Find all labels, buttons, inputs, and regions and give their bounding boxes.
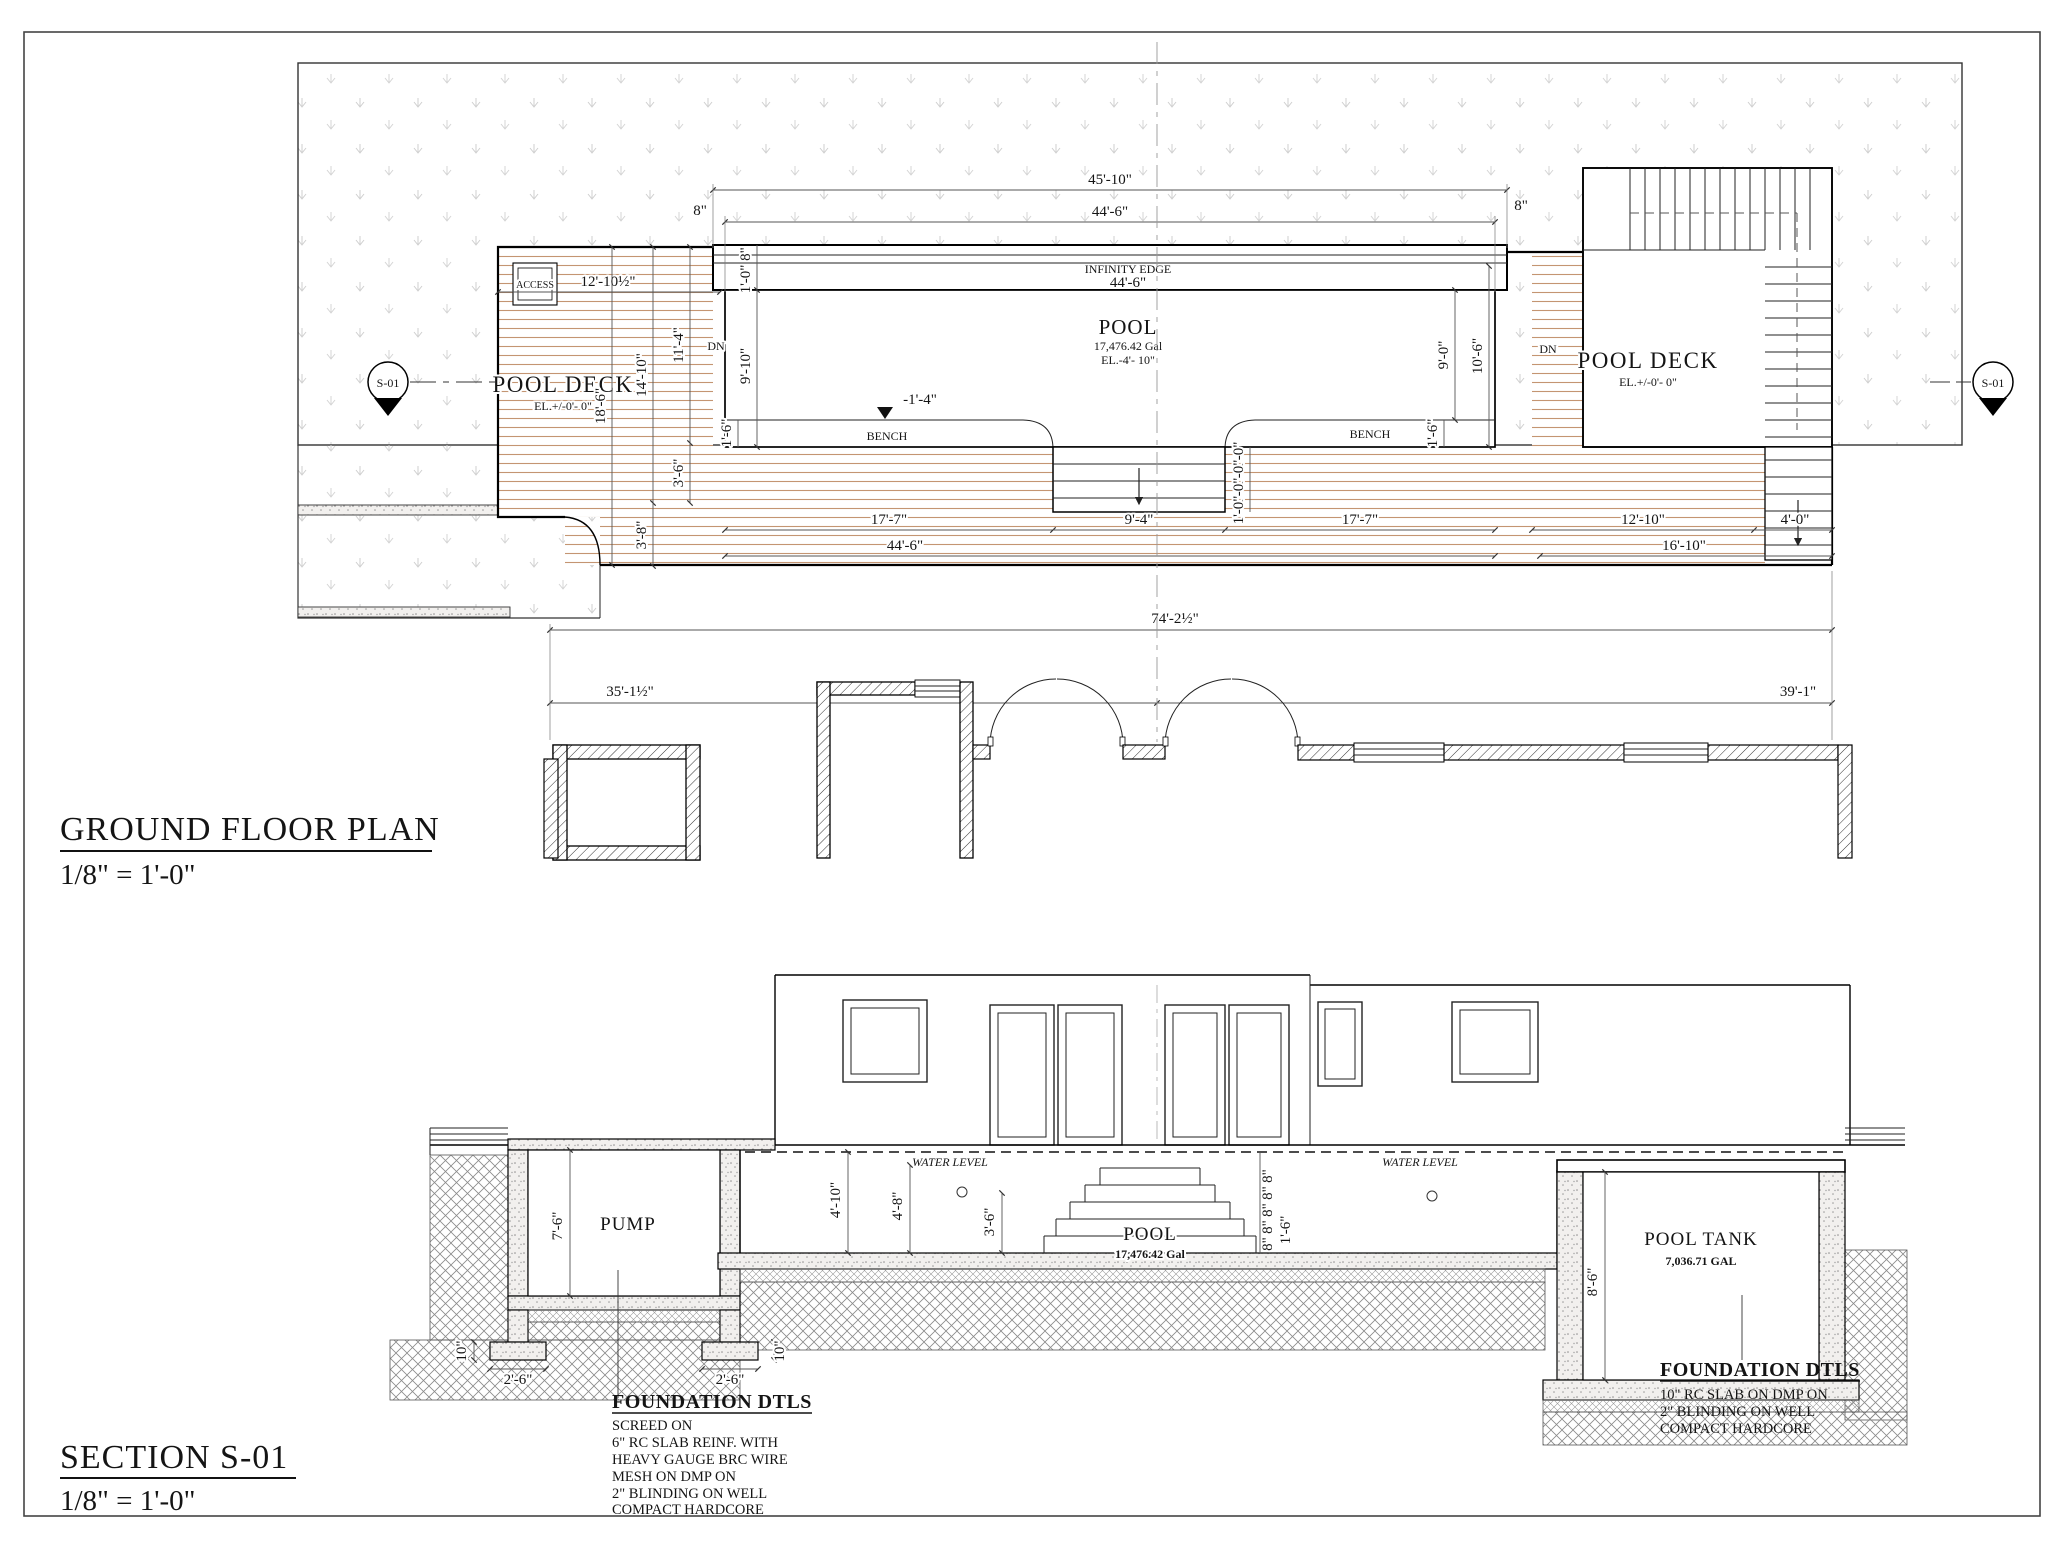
section-title-block: SECTION S-01 1/8" = 1'-0" bbox=[60, 1439, 296, 1517]
pool-deck-left-el: EL.+/-0'- 0" bbox=[534, 399, 592, 413]
dim-bench-right: 1'-6" bbox=[1425, 419, 1441, 448]
dim-gap-right: 8" bbox=[1514, 198, 1528, 214]
dim-pool-right-9-0: 9'-0" bbox=[1436, 341, 1452, 370]
dim-bench-left: 1'-6" bbox=[719, 419, 735, 448]
dim-footing-width: 2'-6" bbox=[716, 1372, 745, 1388]
dim-step-tread: 1'-0" bbox=[1231, 496, 1247, 525]
water-elevation-label: -1'-4" bbox=[903, 392, 937, 408]
dim-riser: 8" bbox=[1260, 1186, 1276, 1200]
section-marker-label: S-01 bbox=[377, 376, 400, 390]
pool-steps bbox=[1053, 447, 1225, 512]
plan-title-block: GROUND FLOOR PLAN 1/8" = 1'-0" bbox=[60, 811, 440, 891]
walkway-right bbox=[1845, 1128, 1905, 1140]
room-left bbox=[553, 745, 700, 860]
french-doors-left bbox=[988, 679, 1125, 746]
dim-trough-inner: 1'-0" bbox=[738, 265, 754, 294]
pool-deck-right-el: EL.+/-0'- 0" bbox=[1619, 375, 1677, 389]
foundation-left-line: 6" RC SLAB REINF. WITH bbox=[612, 1435, 779, 1451]
dim-pool-depth-2: 4'-8" bbox=[890, 1192, 906, 1221]
pump-label: PUMP bbox=[600, 1214, 656, 1235]
section-title: SECTION S-01 bbox=[60, 1439, 288, 1476]
dim-access-width: 12'-10½" bbox=[580, 274, 635, 290]
house-elevation bbox=[775, 975, 1850, 1145]
drawing-canvas: ACCESS POOL DECK EL.+/-0'- 0" POOL DECK … bbox=[0, 0, 2063, 1541]
dim-base-riser: 1'-6" bbox=[1278, 1216, 1294, 1245]
walkway-left bbox=[430, 1128, 508, 1155]
elevation-window bbox=[843, 1000, 927, 1082]
dim-pool-depth-1: 4'-10" bbox=[828, 1182, 844, 1218]
room-mid bbox=[817, 680, 973, 858]
dim-riser: 8" bbox=[1260, 1237, 1276, 1251]
section-marker-label: S-01 bbox=[1982, 376, 2005, 390]
access-hatch: ACCESS bbox=[513, 263, 557, 305]
dim-bench-run-left: 17'-7" bbox=[871, 512, 907, 528]
walkway-strip bbox=[298, 607, 510, 617]
dim-walk-3-8: 3'-8" bbox=[634, 521, 650, 550]
dim-footing-depth: 10" bbox=[454, 1340, 470, 1361]
foundation-right-line: 2" BLINDING ON WELL bbox=[1660, 1404, 1815, 1420]
dim-riser: 8" bbox=[1260, 1220, 1276, 1234]
access-label: ACCESS bbox=[516, 280, 554, 291]
dim-riser: 8" bbox=[1260, 1203, 1276, 1217]
dim-pool-side: 9'-10" bbox=[738, 348, 754, 384]
dim-deck-14-10: 14'-10" bbox=[634, 353, 650, 397]
bench-left-label: BENCH bbox=[867, 429, 908, 443]
dim-pump-depth: 7'-6" bbox=[550, 1212, 566, 1241]
water-level-label: WATER LEVEL bbox=[1382, 1155, 1458, 1169]
footing bbox=[702, 1342, 758, 1360]
dim-gap-left: 8" bbox=[693, 203, 707, 219]
pool-elevation: EL.-4'- 10" bbox=[1101, 353, 1155, 367]
pool-section-volume: 17,476.42 Gal bbox=[1115, 1247, 1185, 1261]
foundation-left-line: COMPACT HARDCORE bbox=[612, 1502, 764, 1518]
pool-deck-right-label: POOL DECK bbox=[1577, 348, 1718, 373]
tank-volume: 7,036.71 GAL bbox=[1665, 1254, 1736, 1268]
infinity-edge-label: INFINITY EDGE bbox=[1085, 262, 1172, 276]
foundation-right-line: 10" RC SLAB ON DMP ON bbox=[1660, 1387, 1828, 1403]
section-arrow-icon bbox=[1979, 398, 2007, 416]
window bbox=[1354, 743, 1444, 762]
section-drawing: PUMP 7'-6" 2'-6" 10" 2'-6" 10" WATER LEV… bbox=[60, 975, 1907, 1518]
dim-pool-length: 44'-6" bbox=[1092, 204, 1128, 220]
window bbox=[915, 680, 960, 697]
foundation-left-line: MESH ON DMP ON bbox=[612, 1469, 736, 1485]
plan-scale: 1/8" = 1'-0" bbox=[60, 859, 195, 891]
section-scale: 1/8" = 1'-0" bbox=[60, 1485, 195, 1517]
water-level-label: WATER LEVEL bbox=[912, 1155, 988, 1169]
foundation-left-line: SCREED ON bbox=[612, 1418, 693, 1434]
dn-left-label: DN bbox=[707, 339, 725, 353]
dim-footing-depth: 10" bbox=[772, 1340, 788, 1361]
pool-jet-icon bbox=[957, 1187, 967, 1197]
dim-bench-run-right: 17'-7" bbox=[1342, 512, 1378, 528]
window bbox=[1624, 743, 1708, 762]
dim-house-right: 39'-1" bbox=[1780, 684, 1816, 700]
pool-section-label: POOL bbox=[1123, 1224, 1177, 1245]
dim-deck-right-12-10: 12'-10" bbox=[1621, 512, 1665, 528]
ground-floor-plan: ACCESS POOL DECK EL.+/-0'- 0" POOL DECK … bbox=[60, 42, 2013, 891]
infinity-length-dim: 44'-6" bbox=[1110, 275, 1146, 291]
elevation-window bbox=[1452, 1002, 1538, 1082]
foundation-left-heading: FOUNDATION DTLS bbox=[612, 1391, 812, 1413]
footing bbox=[490, 1342, 546, 1360]
dim-walk-3-6: 3'-6" bbox=[671, 459, 687, 488]
dim-deck-18-6: 18'-6" bbox=[593, 388, 609, 424]
foundation-right-line: COMPACT HARDCORE bbox=[1660, 1421, 1812, 1437]
pool-jet-icon bbox=[1427, 1191, 1437, 1201]
foundation-left-line: HEAVY GAUGE BRC WIRE bbox=[612, 1452, 788, 1468]
foundation-left-line: 2" BLINDING ON WELL bbox=[612, 1486, 767, 1502]
dim-pool-right-10-6: 10'-6" bbox=[1470, 338, 1486, 374]
bench-right-label: BENCH bbox=[1350, 427, 1391, 441]
foundation-right-heading: FOUNDATION DTLS bbox=[1660, 1359, 1860, 1381]
dim-tank-depth: 8'-6" bbox=[1585, 1268, 1601, 1297]
tank-label: POOL TANK bbox=[1644, 1229, 1758, 1250]
french-doors-right bbox=[1163, 679, 1300, 746]
dim-trough-width: 8" bbox=[738, 247, 754, 261]
elevation-door-pair bbox=[1165, 1005, 1289, 1145]
pool-label: POOL bbox=[1099, 315, 1158, 339]
dim-pool-length-bottom: 44'-6" bbox=[887, 538, 923, 554]
dim-overall-top: 45'-10" bbox=[1088, 172, 1132, 188]
dim-riser: 8" bbox=[1260, 1169, 1276, 1183]
dim-steps-height: 3'-6" bbox=[982, 1208, 998, 1237]
dim-deck-right-16-10: 16'-10" bbox=[1662, 538, 1706, 554]
dim-overall: 74'-2½" bbox=[1151, 611, 1199, 627]
drawing-sheet: ACCESS POOL DECK EL.+/-0'- 0" POOL DECK … bbox=[0, 0, 2063, 1541]
dim-stair-4-0: 4'-0" bbox=[1781, 512, 1810, 528]
plan-title: GROUND FLOOR PLAN bbox=[60, 811, 440, 848]
dim-steps-width: 9'-4" bbox=[1125, 512, 1154, 528]
dim-house-left: 35'-1½" bbox=[606, 684, 654, 700]
pool-volume: 17,476.42 Gal bbox=[1094, 339, 1163, 353]
elevation-door-pair bbox=[990, 1005, 1122, 1145]
dim-footing-width: 2'-6" bbox=[504, 1372, 533, 1388]
walkway-strip bbox=[298, 505, 510, 515]
dn-right-label: DN bbox=[1539, 342, 1557, 356]
elevation-window bbox=[1318, 1002, 1362, 1086]
dim-deck-11-4: 11'-4" bbox=[671, 327, 687, 363]
